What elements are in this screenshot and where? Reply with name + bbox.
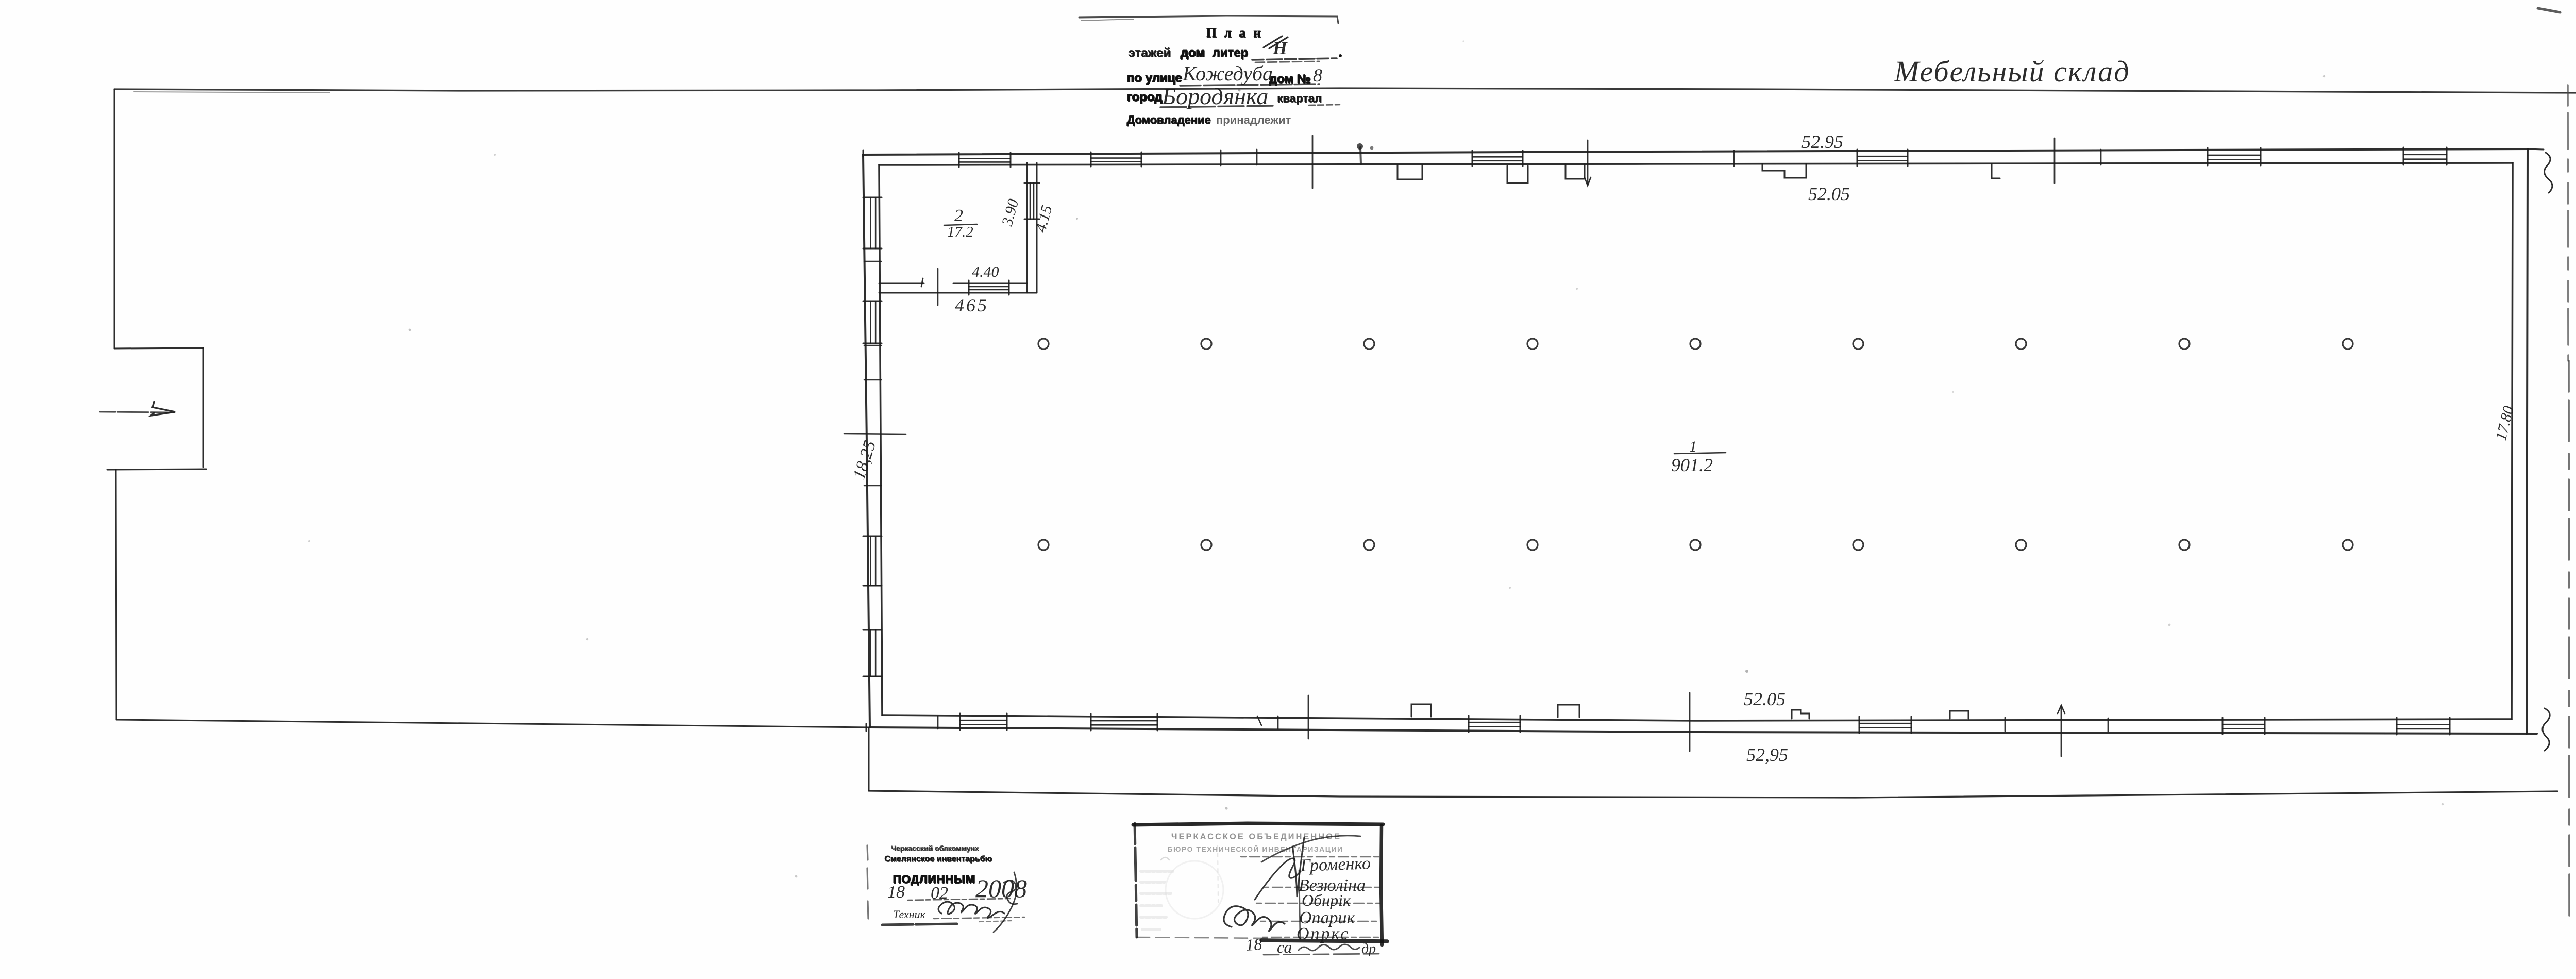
svg-text:8: 8 — [1313, 65, 1322, 86]
svg-text:4.40: 4.40 — [972, 263, 999, 280]
svg-text:дом: дом — [1181, 46, 1205, 60]
svg-text:квартал: квартал — [1277, 92, 1322, 105]
svg-text:Смелянское инвентарьбю: Смелянское инвентарьбю — [885, 854, 992, 863]
svg-text:Опркс: Опркс — [1297, 924, 1350, 943]
svg-text:2: 2 — [954, 206, 963, 225]
svg-text:18: 18 — [1245, 935, 1262, 954]
svg-text:465: 465 — [955, 295, 989, 316]
svg-text:принадлежит: принадлежит — [1216, 113, 1291, 126]
svg-text:52.95: 52.95 — [1801, 131, 1843, 152]
svg-text:901.2: 901.2 — [1671, 455, 1713, 475]
svg-text:Черкасский облкоммунх: Черкасский облкоммунх — [891, 844, 979, 853]
svg-text:Домовладение: Домовладение — [1127, 113, 1211, 126]
svg-text:52.05: 52.05 — [1808, 184, 1850, 204]
svg-text:52,95: 52,95 — [1746, 744, 1788, 765]
svg-text:17.2: 17.2 — [947, 224, 973, 240]
svg-text:этажей: этажей — [1129, 46, 1171, 60]
svg-text:БЮРО ТЕХНИЧЕСКОЙ ИНВЕНТАРИЗАЦИ: БЮРО ТЕХНИЧЕСКОЙ ИНВЕНТАРИЗАЦИИ — [1167, 844, 1343, 853]
svg-text:П л а н: П л а н — [1206, 25, 1263, 40]
svg-text:Громенко: Громенко — [1300, 854, 1371, 875]
svg-text:город: город — [1127, 90, 1163, 104]
svg-text:18: 18 — [887, 883, 905, 902]
svg-text:Мебельный склад: Мебельный склад — [1894, 55, 2130, 88]
svg-text:Обнрік: Обнрік — [1302, 891, 1351, 909]
svg-text:Кожедуба: Кожедуба — [1182, 62, 1273, 85]
svg-text:литер: литер — [1213, 45, 1249, 59]
svg-text:са: са — [1277, 938, 1292, 956]
svg-text:ЧЕРКАССКОЕ ОБЪЕДИНЕННОЕ: ЧЕРКАССКОЕ ОБЪЕДИНЕННОЕ — [1171, 832, 1341, 841]
svg-text:Техник: Техник — [893, 908, 926, 921]
svg-text:52.05: 52.05 — [1744, 689, 1786, 709]
